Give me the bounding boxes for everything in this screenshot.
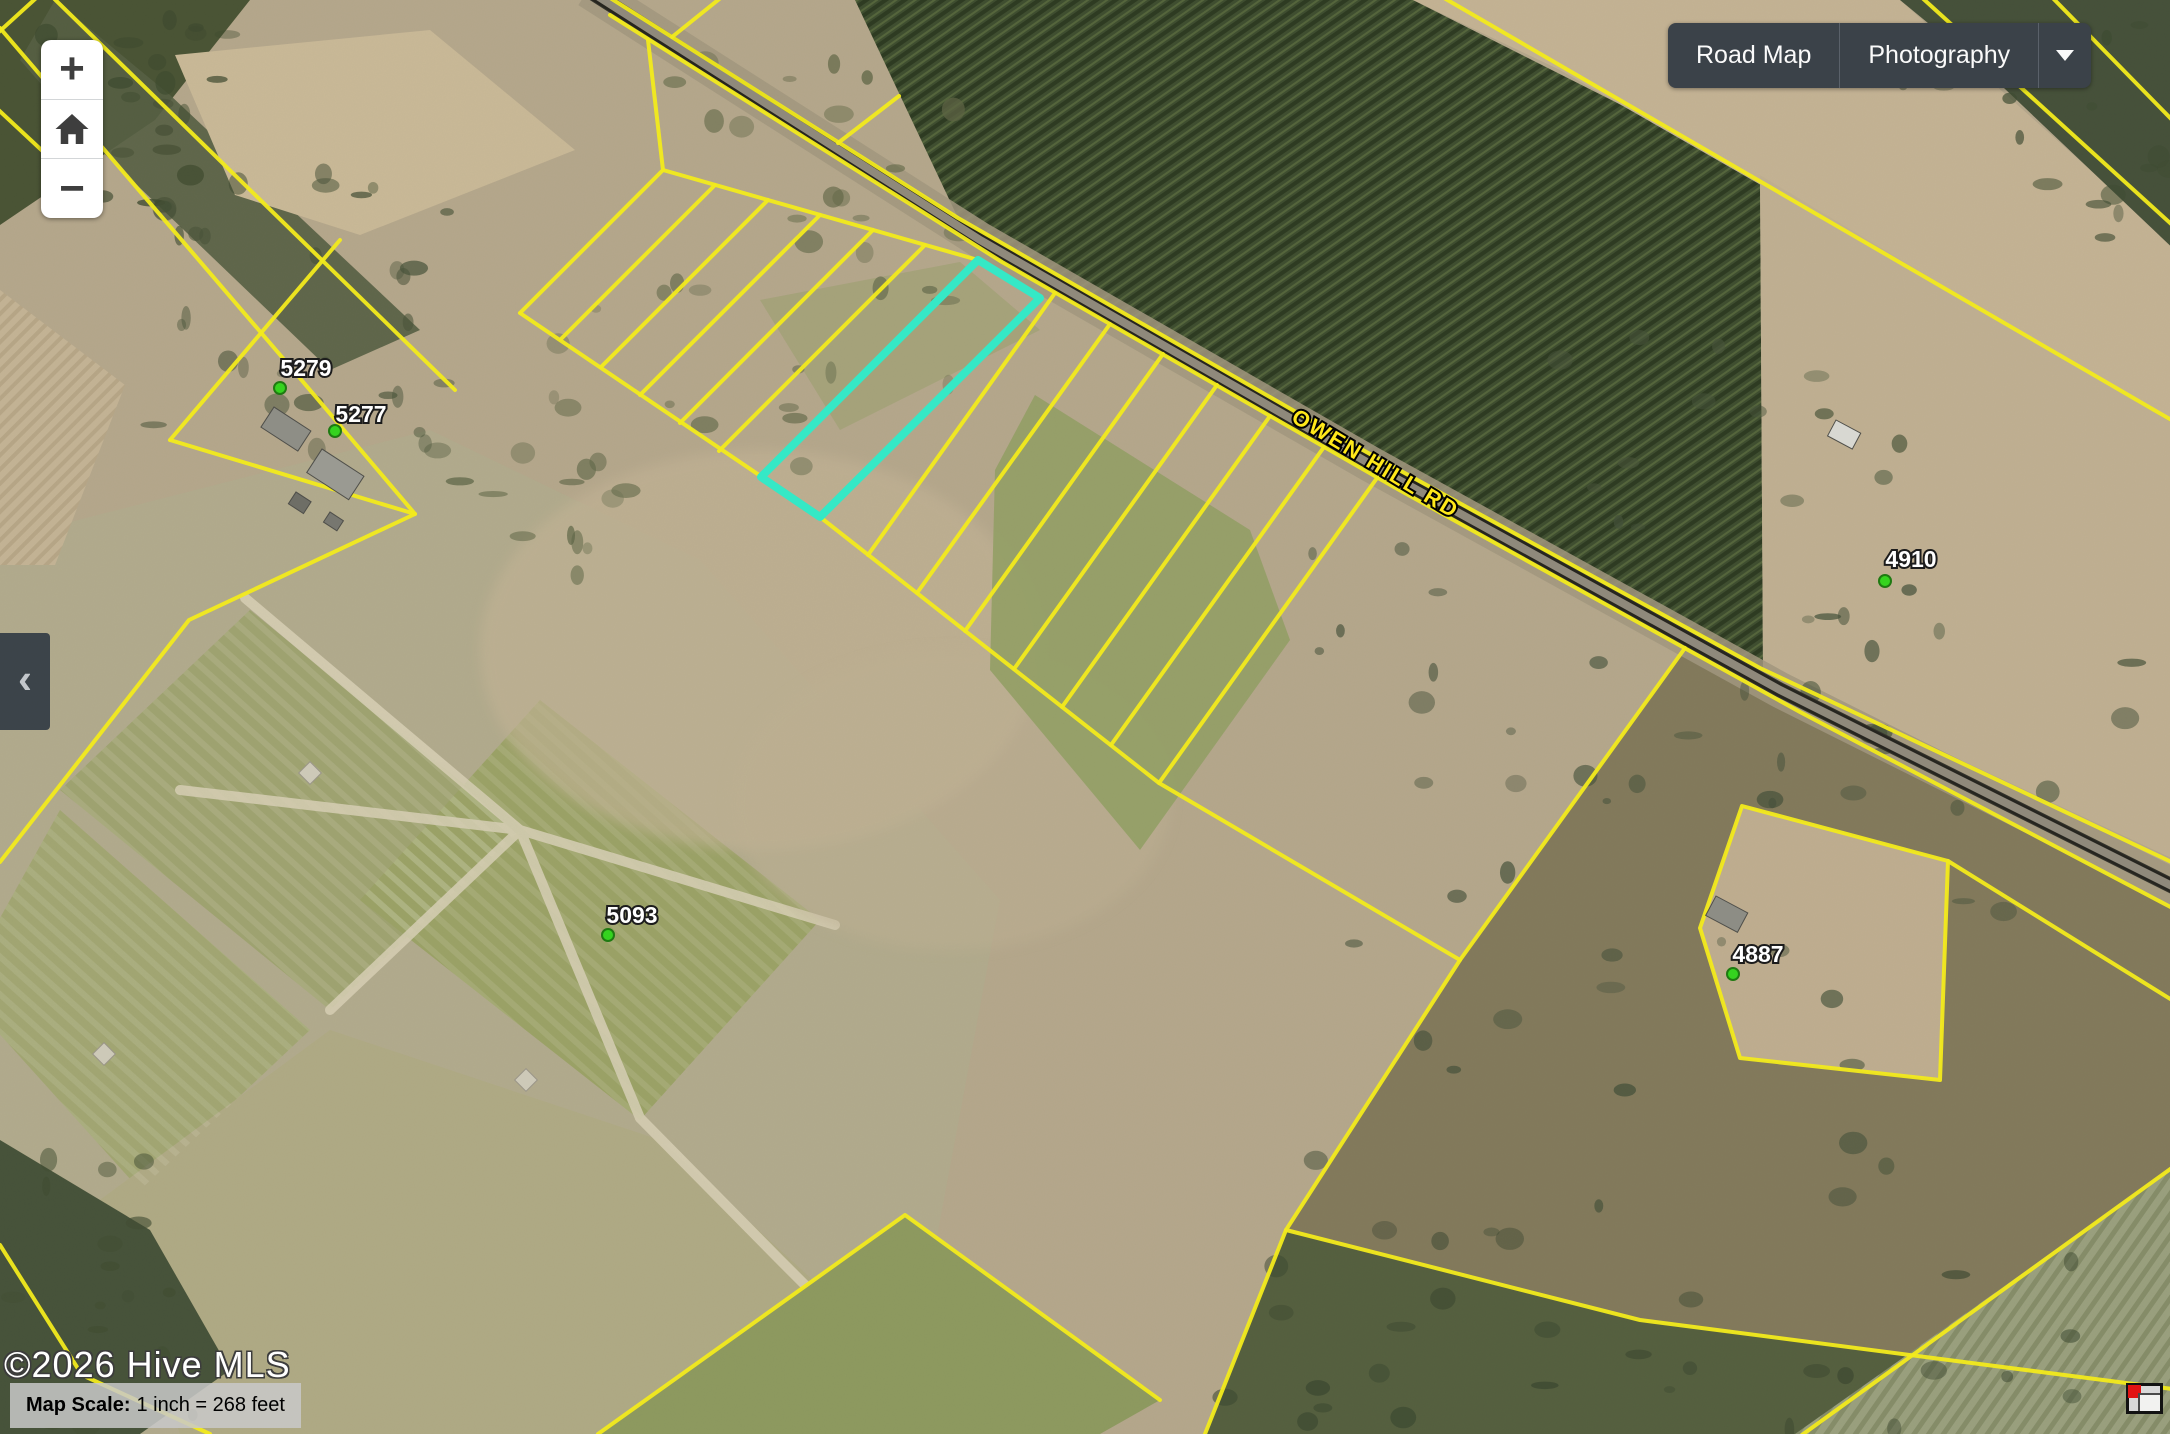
parcel-label: 4887: [1732, 941, 1783, 967]
parcel-label: 5277: [335, 401, 386, 427]
parcel-point-marker[interactable]: [274, 382, 286, 394]
basemap-dropdown-button[interactable]: [2038, 23, 2091, 88]
zoom-out-button[interactable]: −: [41, 158, 103, 218]
map-scale-value: 1 inch = 268 feet: [136, 1394, 284, 1417]
parcel-label: 5093: [606, 902, 657, 928]
map-scale-label: Map Scale:: [26, 1394, 130, 1417]
parcel-label: 5279: [280, 355, 331, 381]
parcel-point-marker[interactable]: [602, 929, 614, 941]
home-button[interactable]: [41, 99, 103, 159]
home-icon: [54, 112, 90, 146]
overview-map-toggle[interactable]: [2126, 1383, 2163, 1414]
road-map-button[interactable]: Road Map: [1668, 23, 1839, 88]
zoom-in-button[interactable]: +: [41, 40, 103, 99]
plus-icon: +: [59, 47, 85, 91]
photography-button[interactable]: Photography: [1839, 23, 2038, 88]
basemap-switcher: Road Map Photography: [1668, 23, 2091, 88]
chevron-left-icon: ‹: [18, 658, 32, 700]
parcel-label: 4910: [1885, 546, 1936, 572]
chevron-down-icon: [2056, 50, 2074, 61]
minus-icon: −: [59, 167, 85, 211]
map-attribution: ©2026 Hive MLS: [4, 1344, 291, 1386]
panel-collapse-tab[interactable]: ‹: [0, 633, 50, 730]
map-scale-readout: Map Scale: 1 inch = 268 feet: [10, 1383, 301, 1428]
overview-viewport-icon: [2138, 1393, 2160, 1411]
parcel-point-marker[interactable]: [1879, 575, 1891, 587]
map-zoom-control: + −: [41, 40, 103, 218]
aerial-map-canvas[interactable]: 52795277509349104887OWEN HILL RD: [0, 0, 2170, 1434]
parcel-point-marker[interactable]: [1727, 968, 1739, 980]
map-viewport[interactable]: 52795277509349104887OWEN HILL RD + − Roa…: [0, 0, 2170, 1434]
